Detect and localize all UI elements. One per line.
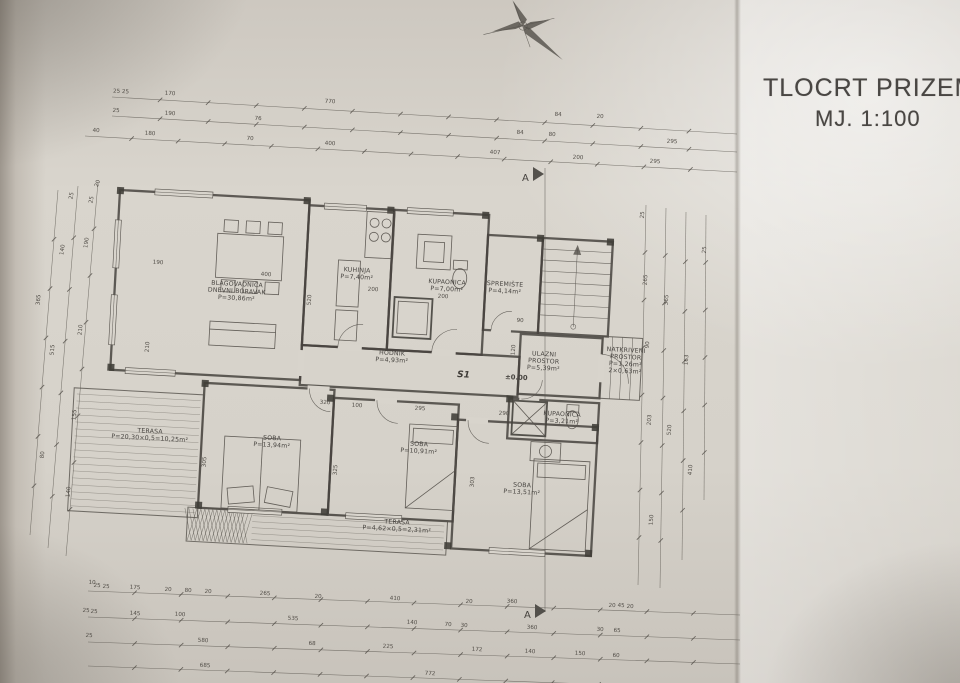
dimension-text: 145 <box>130 611 141 618</box>
dimension-text: 80 <box>184 588 192 594</box>
dimension-text: 365 <box>664 294 671 306</box>
room-label-natkriveni-prostor: NATKRIVENIPROSTORP=1,26m²2×0,63m² <box>605 346 645 376</box>
dimension-text: 25 <box>68 191 75 199</box>
dimension-text: 360 <box>507 599 518 606</box>
dimension-text: 190 <box>153 260 164 267</box>
dimension-text: 25 <box>102 584 110 590</box>
dimension-text: 100 <box>352 403 363 410</box>
dimension-text: 400 <box>325 141 336 148</box>
dimension-text: 100 <box>175 612 186 619</box>
dimension-text: 25 <box>85 633 93 639</box>
dimension-text: 170 <box>165 91 176 98</box>
room-label-soba-1: SOBAP=13,94m² <box>253 434 291 450</box>
dimension-text: 265 <box>643 274 650 286</box>
room-label-blagovaonica-dnevni-boravak: BLAGOVAONICADNEVNI BORAVAKP=30,86m² <box>207 279 267 303</box>
dimension-text: 200 <box>573 155 584 162</box>
room-label-kupaonica-2: KUPAONICAP=3,21m² <box>543 410 582 426</box>
dimension-text: 25 <box>702 246 709 254</box>
section-letter: A <box>522 173 529 184</box>
dimension-text: 520 <box>307 294 314 306</box>
dimension-text: 200 <box>438 294 449 301</box>
dimension-text: 410 <box>688 464 695 476</box>
dimension-text: 140 <box>407 620 418 627</box>
dimension-text: 60 <box>612 653 620 659</box>
room-label-soba-2: SOBAP=10,91m² <box>400 440 438 456</box>
dimension-text: 140 <box>65 486 72 498</box>
room-label-spremiste: SPREMIŠTEP=4,14m² <box>486 278 523 296</box>
dimension-text: 210 <box>145 341 152 353</box>
dimension-text: 20 <box>626 604 634 610</box>
dimension-text: 30 <box>460 623 468 629</box>
dimension-text: 90 <box>516 318 524 324</box>
walls <box>102 190 650 558</box>
dimension-text: 175 <box>130 585 141 592</box>
dimension-text: 25 <box>90 609 98 615</box>
dimension-numbers: 25 2517077084202519076848029540180704004… <box>35 89 708 678</box>
dimension-text: 40 <box>92 128 100 134</box>
dimension-text: 25 <box>88 195 95 203</box>
dimension-text: 20 <box>596 114 604 120</box>
scanned-floor-plan-photo: { "title": { "line1": "TLOCRT PRIZEMLJA"… <box>0 0 960 683</box>
room-label-kupaonica-1: KUPAONICAP=7,00m² <box>428 278 467 294</box>
dimension-text: 20 <box>94 179 102 188</box>
dimension-text: 76 <box>254 116 262 122</box>
dimension-text: 225 <box>383 644 394 651</box>
dimension-text: 80 <box>40 451 47 459</box>
dimension-text: 120 <box>511 344 518 356</box>
staircase <box>538 243 612 331</box>
room-label-ulazni-prostor: ULAZNIPROSTORP=5,39m² <box>527 350 561 373</box>
dimension-text: 25 25 <box>113 89 130 96</box>
dimension-text: 20 <box>465 599 473 605</box>
dimension-text: 25 <box>82 608 90 614</box>
dimension-text: 305 <box>202 456 209 468</box>
dimension-text: 210 <box>77 324 84 336</box>
dimension-text: 84 <box>554 112 562 118</box>
dimension-text: 200 <box>368 287 379 294</box>
room-label-soba-3: SOBAP=13,51m² <box>503 481 541 497</box>
dimension-text: 325 <box>333 464 340 476</box>
north-arrow-icon <box>481 0 569 60</box>
dimension-text: 515 <box>49 344 56 356</box>
dimension-text: 190 <box>83 237 90 249</box>
dimension-text: 410 <box>390 596 401 603</box>
dimension-ticks <box>32 98 708 683</box>
dimension-text: 90 <box>645 341 652 349</box>
dimension-text: 20 <box>314 594 322 600</box>
windows <box>98 187 563 557</box>
dimension-text: 580 <box>198 638 209 645</box>
dimension-text: 70 <box>246 136 254 142</box>
dimension-text: 365 <box>35 294 42 306</box>
dimension-text: 770 <box>325 99 336 106</box>
dimension-text: 20 <box>608 603 616 609</box>
dimension-text: 68 <box>308 641 316 647</box>
dimension-text: 65 <box>613 628 621 634</box>
dimension-text: 203 <box>647 414 654 426</box>
dimension-text: 290 <box>499 411 510 418</box>
dimension-text: 30 <box>596 627 604 633</box>
level-mark: ±0.00 <box>505 373 528 382</box>
dimension-text: 295 <box>650 159 661 166</box>
dimension-text: 84 <box>516 130 524 136</box>
dimension-text: 150 <box>575 651 586 658</box>
dimension-text: 180 <box>145 131 156 138</box>
room-label-hodnik: HODNIKP=4,93m² <box>375 349 409 365</box>
dimension-text: 295 <box>667 139 678 146</box>
dimension-text: 20 <box>204 589 212 595</box>
building-plan <box>66 185 649 565</box>
dimension-text: 685 <box>200 663 211 670</box>
dimension-text: 360 <box>527 625 538 632</box>
dimension-text: 25 <box>112 108 120 114</box>
dimension-text: 45 <box>617 603 625 609</box>
dimension-text: 265 <box>260 591 271 598</box>
dimension-text: 155 <box>71 409 78 421</box>
stair-mark: S1 <box>457 370 470 381</box>
dimension-text: 772 <box>425 671 436 678</box>
dimension-text: 150 <box>649 514 656 526</box>
room-label-terasa-1: TERASAP=20,30×0,5=10,25m² <box>111 426 189 444</box>
dimension-text: 80 <box>548 132 556 138</box>
dimension-text: 140 <box>59 244 66 256</box>
dimension-text: 20 <box>164 587 172 593</box>
section-letter: A <box>524 610 531 621</box>
dimension-text: 25 <box>640 211 647 219</box>
room-label-kuhinja: KUHINJAP=7,40m² <box>340 266 374 282</box>
dimension-text: 407 <box>490 150 501 157</box>
dimension-text: 535 <box>288 616 299 623</box>
dimension-text: 400 <box>261 272 272 279</box>
dimension-text: 140 <box>525 649 536 656</box>
columns <box>99 187 616 557</box>
dimension-text: 320 <box>320 400 331 407</box>
floor-plan-drawing: 25 2517077084202519076848029540180704004… <box>0 0 960 683</box>
dimension-text: 190 <box>165 111 176 118</box>
dimension-text: 25 <box>93 583 101 589</box>
dimension-text: 295 <box>415 406 426 413</box>
dimension-text: 172 <box>472 647 483 654</box>
dimension-text: 163 <box>684 354 691 366</box>
dimension-text: 520 <box>667 424 674 436</box>
dimension-text: 70 <box>444 622 452 628</box>
dimension-text: 303 <box>470 476 477 488</box>
